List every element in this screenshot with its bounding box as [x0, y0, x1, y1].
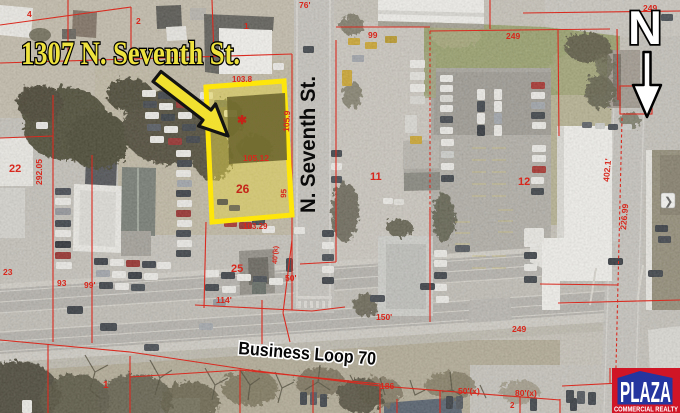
svg-text:1307 N. Seventh St.: 1307 N. Seventh St. — [21, 36, 240, 72]
svg-text:103.8: 103.8 — [232, 75, 253, 84]
svg-text:N. Seventh St.: N. Seventh St. — [296, 76, 320, 213]
svg-text:2: 2 — [510, 401, 515, 410]
svg-text:99': 99' — [84, 280, 95, 290]
svg-text:50'(x): 50'(x) — [458, 386, 480, 396]
svg-text:402.1': 402.1' — [601, 158, 613, 182]
svg-text:1: 1 — [244, 21, 249, 31]
svg-text:✱: ✱ — [237, 113, 247, 127]
svg-text:114': 114' — [216, 295, 232, 305]
svg-text:105.12: 105.12 — [243, 153, 269, 163]
svg-text:95: 95 — [279, 188, 288, 198]
svg-text:25: 25 — [231, 263, 243, 275]
svg-text:11: 11 — [370, 171, 382, 183]
svg-text:26: 26 — [236, 182, 250, 196]
svg-text:76': 76' — [299, 0, 310, 10]
svg-text:COMMERCIAL REALTY: COMMERCIAL REALTY — [614, 405, 678, 413]
svg-text:292.05: 292.05 — [34, 159, 44, 185]
svg-text:103.29: 103.29 — [243, 222, 268, 231]
svg-text:50': 50' — [285, 273, 296, 283]
svg-text:N: N — [628, 1, 662, 54]
svg-text:150': 150' — [376, 312, 392, 322]
svg-text:1: 1 — [103, 380, 109, 391]
svg-text:186: 186 — [380, 381, 394, 391]
svg-text:4: 4 — [27, 9, 32, 19]
svg-text:22: 22 — [9, 163, 21, 175]
svg-text:40'(k): 40'(k) — [272, 246, 280, 264]
svg-text:99: 99 — [368, 30, 378, 40]
svg-text:12: 12 — [518, 176, 530, 188]
svg-text:249: 249 — [512, 324, 526, 334]
svg-text:249: 249 — [506, 31, 520, 41]
svg-text:2: 2 — [136, 16, 141, 26]
svg-text:80'(x): 80'(x) — [515, 388, 537, 398]
svg-text:93: 93 — [57, 278, 67, 288]
svg-text:23: 23 — [3, 267, 13, 277]
svg-text:105.9: 105.9 — [281, 110, 292, 132]
